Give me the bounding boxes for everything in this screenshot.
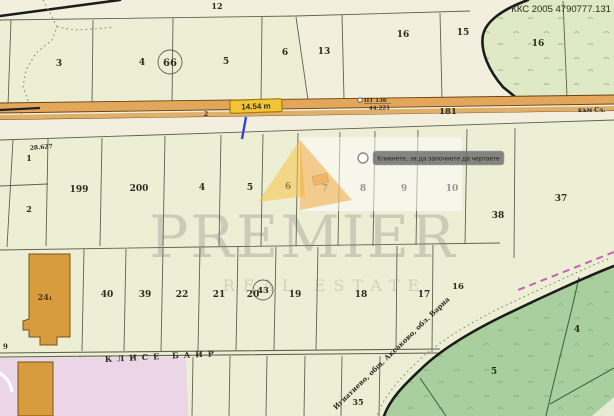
survey-point-icon: [358, 98, 362, 102]
parcel-label: 200: [130, 184, 149, 194]
parcel-label: 35: [352, 397, 363, 407]
parcel-label: 66: [163, 58, 177, 69]
parcel-label: 9: [3, 342, 8, 351]
parcel-label: 12: [211, 1, 222, 11]
parcel-label: 6: [282, 48, 288, 58]
map-viewport[interactable]: 12 3 4 66 5 6 13 16 15 16 1 2 199 200 4 …: [0, 0, 614, 416]
drawing-tooltip: Кликнете, за да започнете да чертаете: [358, 151, 504, 165]
watermark-tagline: REAL ESTATE: [223, 276, 427, 295]
building-south: [18, 362, 53, 416]
parcel-label: 1: [26, 153, 32, 163]
parcel-label: 4: [139, 58, 145, 68]
parcel-label: 15: [457, 28, 470, 38]
road-direction-label: към Сл.: [578, 107, 605, 114]
survey-point-label: ПТ 136: [364, 98, 387, 104]
parcel-label: 5: [247, 183, 253, 193]
drawing-cursor-icon: [358, 153, 368, 163]
road-number-label: 181: [439, 107, 457, 117]
parcel-label: 3: [56, 59, 62, 69]
cadastral-map[interactable]: 12 3 4 66 5 6 13 16 15 16 1 2 199 200 4 …: [0, 0, 614, 416]
distance-label: 44.221: [369, 105, 390, 112]
km-mark-label: 2: [204, 111, 208, 118]
coordinate-ref-label: ККС 2005 4790777.131: [511, 4, 611, 15]
watermark-brand: PREMIER: [149, 203, 457, 271]
parcel-label: 5: [223, 57, 229, 67]
parcel-label: 4: [199, 183, 205, 193]
parcel-label: 38: [492, 211, 505, 221]
tooltip-text: Кликнете, за да започнете да чертаете: [377, 156, 500, 163]
parcel-label: 40: [101, 290, 114, 300]
parcel-label: 4: [574, 325, 580, 335]
building-24-label: 24₁: [38, 292, 53, 302]
parcel-label: 13: [318, 47, 331, 57]
width-measure-badge: 14.54 m: [230, 99, 282, 114]
parcel-label: 39: [139, 290, 152, 300]
width-measure-label: 14.54 m: [241, 101, 271, 111]
parcel-label: 199: [70, 185, 89, 195]
parcel-label: 2: [26, 204, 32, 214]
parcel-label: 22: [176, 290, 189, 300]
parcel-label: 16: [397, 30, 410, 40]
parcel-label: 5: [491, 367, 497, 377]
parcel-label: 16: [452, 282, 464, 292]
parcel-label: 37: [555, 194, 568, 204]
parcel-label: 16: [532, 39, 545, 49]
